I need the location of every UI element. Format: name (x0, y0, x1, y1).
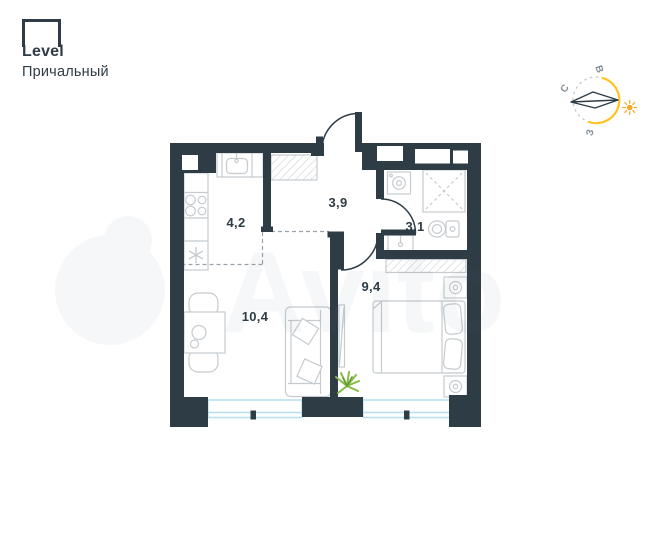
room-area-label-kitchen: 4,2 (227, 215, 246, 230)
wall-window-pier (302, 397, 363, 417)
washing-machine-icon (388, 172, 411, 194)
kitchen-sink-icon (222, 153, 252, 177)
nightstand-lamp-icon (444, 376, 467, 397)
floorplan-drawing: 4,2 3,9 3,1 9,4 10,4 Avito (0, 0, 648, 540)
shower-icon (423, 170, 465, 212)
closet-hatch-icon (271, 155, 317, 180)
room-area-label-hallway: 3,9 (329, 195, 348, 210)
wall-kitchen (263, 153, 271, 229)
window-mullion (404, 411, 410, 420)
wall-left (170, 143, 184, 427)
wall-bathroom-left (376, 170, 384, 199)
window-mullion (251, 411, 257, 420)
wall-top (216, 143, 313, 153)
entrance-door-leaf (355, 112, 362, 152)
watermark-text: Avito (222, 229, 505, 357)
dining-table-icon (184, 312, 225, 353)
plant-icon (336, 372, 359, 393)
wall-bottom-right-block (449, 395, 481, 427)
entrance-door-arc (322, 114, 359, 151)
avito-watermark: Avito (55, 216, 505, 357)
floorplan-page: Level Причальный В С З (0, 0, 648, 540)
wall-bottom-left-block (170, 397, 208, 427)
